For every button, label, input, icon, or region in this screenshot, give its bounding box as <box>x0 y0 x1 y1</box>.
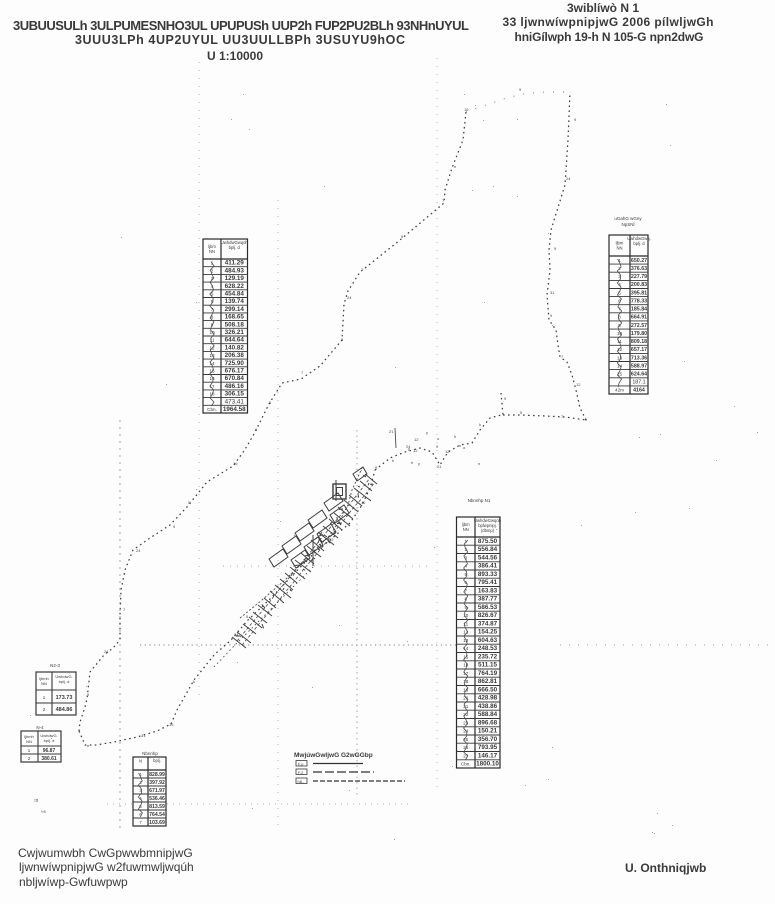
svg-text:154.25: 154.25 <box>478 629 498 636</box>
svg-text:bplj. d: bplj. d <box>229 245 241 250</box>
svg-text:Nbnnhp: Nbnnhp <box>142 751 158 756</box>
svg-text:33 ljwnwíwpnipjwG 2006 pílwljw: 33 ljwnwíwpnipjwG 2006 pílwljwGh <box>503 15 714 29</box>
svg-text:h: h <box>454 434 456 439</box>
svg-text:n: n <box>585 417 587 422</box>
svg-text:235.72: 235.72 <box>478 653 498 660</box>
svg-text:473.41: 473.41 <box>225 398 245 405</box>
svg-text:588.84: 588.84 <box>478 711 498 718</box>
svg-text:Cbn.: Cbn. <box>461 762 471 767</box>
svg-text:536.46: 536.46 <box>149 796 165 802</box>
svg-text:hniGílwph 19-h N 105-G npn2dwG: hniGílwph 19-h N 105-G npn2dwG <box>515 30 704 44</box>
svg-text:139.74: 139.74 <box>225 298 245 305</box>
svg-text:163.83: 163.83 <box>478 587 498 594</box>
svg-text:173.73: 173.73 <box>56 695 73 701</box>
svg-text:272.57: 272.57 <box>631 323 647 329</box>
svg-text:828.99: 828.99 <box>149 772 165 778</box>
svg-text:42m: 42m <box>615 388 624 393</box>
svg-text:4164: 4164 <box>633 388 645 394</box>
svg-text:764.54: 764.54 <box>149 812 165 818</box>
svg-text:670.84: 670.84 <box>225 375 245 382</box>
svg-text:bplj.: bplj. <box>153 758 161 763</box>
svg-text:893.33: 893.33 <box>478 571 498 578</box>
svg-text:12: 12 <box>413 448 418 453</box>
svg-text:386.41: 386.41 <box>478 563 498 570</box>
svg-text:NN: NN <box>26 739 32 744</box>
svg-text:31: 31 <box>141 733 146 738</box>
svg-text:16: 16 <box>169 722 174 727</box>
svg-text:140.82: 140.82 <box>225 344 245 351</box>
svg-text:Cbn.: Cbn. <box>207 407 217 412</box>
svg-text:16: 16 <box>464 107 469 112</box>
svg-text:ljwnwíwpnipjwG w2fuwmwljwqúh: ljwnwíwpnipjwG w2fuwmwljwqúh <box>19 860 194 874</box>
svg-text:24: 24 <box>347 295 352 300</box>
svg-text:12: 12 <box>576 382 581 387</box>
svg-text:31: 31 <box>290 572 295 577</box>
svg-text:299.14: 299.14 <box>225 306 245 313</box>
svg-text:NN: NN <box>209 249 215 254</box>
svg-text:3UBUUSULh 3ULPUMESNHO3UL UPUPU: 3UBUUSULh 3ULPUMESNHO3UL UPUPUSh UUP2h F… <box>13 18 469 33</box>
svg-text:395.81: 395.81 <box>631 290 647 296</box>
svg-text:387.77: 387.77 <box>478 596 498 603</box>
svg-text:628.22: 628.22 <box>225 283 245 290</box>
svg-text:y: y <box>426 430 428 435</box>
svg-text:Cwjwumwbh CwGpwwbmnipjwG: Cwjwumwbh CwGpwwbmnipjwG <box>18 846 193 860</box>
svg-text:NN: NN <box>41 681 47 686</box>
svg-text:374.87: 374.87 <box>478 620 498 627</box>
svg-text:380.61: 380.61 <box>41 756 57 762</box>
svg-text:544.56: 544.56 <box>478 554 498 561</box>
svg-text:12: 12 <box>445 449 450 454</box>
svg-text:bplj. d: bplj. d <box>633 241 645 246</box>
svg-text:511.15: 511.15 <box>478 662 497 669</box>
svg-text:454.84: 454.84 <box>225 291 245 298</box>
svg-text:356.70: 356.70 <box>478 736 498 743</box>
svg-text:11: 11 <box>210 338 215 343</box>
svg-text:N2-3: N2-3 <box>50 663 60 668</box>
svg-text:MwjúwGwljwG G2wGGbp: MwjúwGwljwG G2wGGbp <box>294 752 373 759</box>
svg-text:778.33: 778.33 <box>631 298 647 304</box>
svg-text:16: 16 <box>233 461 238 466</box>
svg-text:bplj. d: bplj. d <box>44 738 55 743</box>
svg-text:875.50: 875.50 <box>478 538 498 545</box>
svg-text:NN: NN <box>616 246 622 251</box>
svg-text:24: 24 <box>566 176 571 181</box>
svg-text:187.1: 187.1 <box>632 380 645 386</box>
svg-text:k: k <box>193 679 195 684</box>
svg-text:21: 21 <box>389 429 394 434</box>
svg-text:411.29: 411.29 <box>225 260 244 267</box>
svg-text:150.21: 150.21 <box>478 728 498 735</box>
svg-text:650.27: 650.27 <box>631 258 647 264</box>
svg-text:103.69: 103.69 <box>149 820 165 826</box>
svg-text:3wiblíwò N 1: 3wiblíwò N 1 <box>567 1 639 15</box>
svg-text:676.17: 676.17 <box>225 368 245 375</box>
svg-text:376.63: 376.63 <box>631 266 647 272</box>
svg-text:24: 24 <box>136 548 141 553</box>
svg-text:146.17: 146.17 <box>478 752 498 759</box>
svg-text:666.50: 666.50 <box>478 686 498 693</box>
svg-text:397.92: 397.92 <box>149 780 165 786</box>
svg-text:24: 24 <box>104 649 109 654</box>
svg-text:≈s: ≈s <box>41 809 46 814</box>
svg-text:764.19: 764.19 <box>478 670 498 677</box>
svg-text:664.91: 664.91 <box>631 315 647 321</box>
svg-text:U 1:10000: U 1:10000 <box>207 49 263 63</box>
svg-text:200.83: 200.83 <box>631 282 647 288</box>
svg-text:129.19: 129.19 <box>225 275 245 282</box>
svg-text:h: h <box>411 460 413 465</box>
svg-text:(dbmp): (dbmp) <box>481 528 495 533</box>
svg-text:12: 12 <box>329 537 334 542</box>
svg-text:3UUU3LPh 4UP2UYUL UU3UULLBPh 3: 3UUU3LPh 4UP2UYUL UU3UULLBPh 3USUYU9hOC <box>75 33 405 47</box>
svg-text:y: y <box>418 461 420 466</box>
svg-text:NN: NN <box>463 527 469 532</box>
svg-text:↑n: ↑n <box>33 798 39 804</box>
svg-text:793.95: 793.95 <box>478 744 498 751</box>
svg-text:809.18: 809.18 <box>631 339 647 345</box>
svg-text:12: 12 <box>414 437 419 442</box>
svg-text:896.68: 896.68 <box>478 719 498 726</box>
svg-text:k: k <box>479 422 481 427</box>
svg-text:24: 24 <box>234 632 239 637</box>
svg-text:586.53: 586.53 <box>478 604 498 611</box>
svg-text:n: n <box>459 443 461 448</box>
svg-text:16: 16 <box>463 663 469 668</box>
svg-text:12: 12 <box>361 500 366 505</box>
svg-text:n: n <box>87 743 89 748</box>
svg-text:624.64: 624.64 <box>631 372 647 378</box>
svg-text:U. Onthniqjwb: U. Onthniqjwb <box>625 861 706 875</box>
svg-text:n: n <box>478 461 480 466</box>
svg-text:h: h <box>392 458 394 463</box>
svg-text:N: N <box>139 759 142 764</box>
svg-text:306.15: 306.15 <box>225 391 245 398</box>
svg-text:bplj. d: bplj. d <box>59 679 70 684</box>
svg-text:1800.10: 1800.10 <box>476 761 499 768</box>
svg-text:31: 31 <box>550 290 555 295</box>
svg-text:326.21: 326.21 <box>225 329 245 336</box>
svg-text:nbljwíwp-Gwfuwpwp: nbljwíwp-Gwfuwpwp <box>19 875 128 889</box>
svg-text:23: 23 <box>463 720 469 725</box>
svg-text:556.84: 556.84 <box>478 546 498 553</box>
svg-text:484.86: 484.86 <box>56 707 73 713</box>
svg-text:826.67: 826.67 <box>478 612 498 619</box>
svg-text:NpSNl: NpSNl <box>621 222 634 227</box>
svg-text:179.80: 179.80 <box>631 331 647 337</box>
svg-text:248.53: 248.53 <box>478 645 498 652</box>
svg-text:588.97: 588.97 <box>631 363 647 369</box>
svg-text:795.41: 795.41 <box>478 579 498 586</box>
svg-text:206.38: 206.38 <box>225 352 245 359</box>
svg-text:n: n <box>454 164 456 169</box>
svg-text:24: 24 <box>406 444 411 449</box>
svg-text:428.98: 428.98 <box>478 695 498 702</box>
svg-text:227.79: 227.79 <box>631 274 647 280</box>
svg-text:486.16: 486.16 <box>225 383 245 390</box>
svg-text:862.81: 862.81 <box>478 678 498 685</box>
svg-text:21: 21 <box>437 464 442 469</box>
svg-text:813.59: 813.59 <box>149 804 165 810</box>
svg-text:484.93: 484.93 <box>225 267 245 274</box>
svg-text:1964.58: 1964.58 <box>223 406 246 413</box>
svg-text:713.36: 713.36 <box>631 355 647 361</box>
svg-text:uGahG wGny: uGahG wGny <box>614 216 642 221</box>
svg-text:657.17: 657.17 <box>631 347 647 353</box>
svg-text:508.18: 508.18 <box>225 321 245 328</box>
svg-text:N-4: N-4 <box>36 725 44 730</box>
svg-text:438.86: 438.86 <box>478 703 498 710</box>
svg-text:604.63: 604.63 <box>478 637 498 644</box>
svg-text:671.97: 671.97 <box>149 788 165 794</box>
svg-text:644.64: 644.64 <box>225 337 245 344</box>
svg-text:96.87: 96.87 <box>43 748 56 754</box>
svg-text:Nbnnhp N1: Nbnnhp N1 <box>468 498 491 503</box>
svg-text:725.90: 725.90 <box>225 360 245 367</box>
svg-text:168.65: 168.65 <box>225 314 245 321</box>
svg-text:185.84: 185.84 <box>631 307 647 313</box>
